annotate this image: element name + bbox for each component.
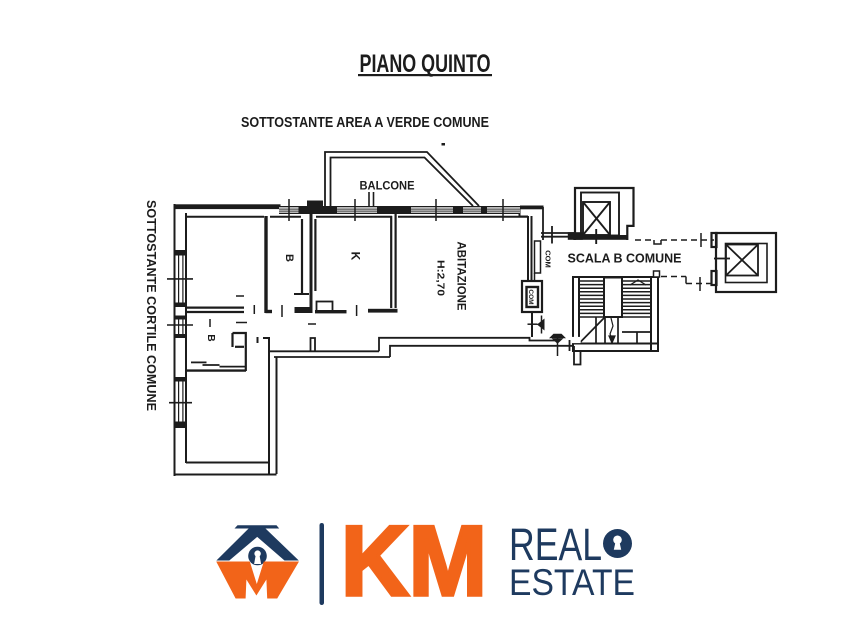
svg-text:COM: COM bbox=[544, 250, 553, 268]
svg-text:K: K bbox=[349, 252, 363, 261]
svg-text:B: B bbox=[205, 334, 216, 341]
svg-text:BALCONE: BALCONE bbox=[360, 179, 415, 193]
svg-text:B: B bbox=[283, 254, 295, 262]
svg-text:KM: KM bbox=[341, 505, 487, 616]
svg-text:PIANO QUINTO: PIANO QUINTO bbox=[360, 50, 491, 78]
svg-text:SOTTOSTANTE CORTILE COMUNE: SOTTOSTANTE CORTILE COMUNE bbox=[144, 200, 159, 411]
svg-text:ESTATE: ESTATE bbox=[509, 562, 635, 603]
svg-text:COM: COM bbox=[527, 289, 534, 304]
svg-text:H:2,70: H:2,70 bbox=[435, 260, 447, 296]
svg-text:SOTTOSTANTE AREA A VERDE COMUN: SOTTOSTANTE AREA A VERDE COMUNE bbox=[241, 115, 489, 131]
svg-text:SCALA B COMUNE: SCALA B COMUNE bbox=[568, 251, 682, 266]
svg-text:ABITAZIONE: ABITAZIONE bbox=[455, 242, 467, 311]
